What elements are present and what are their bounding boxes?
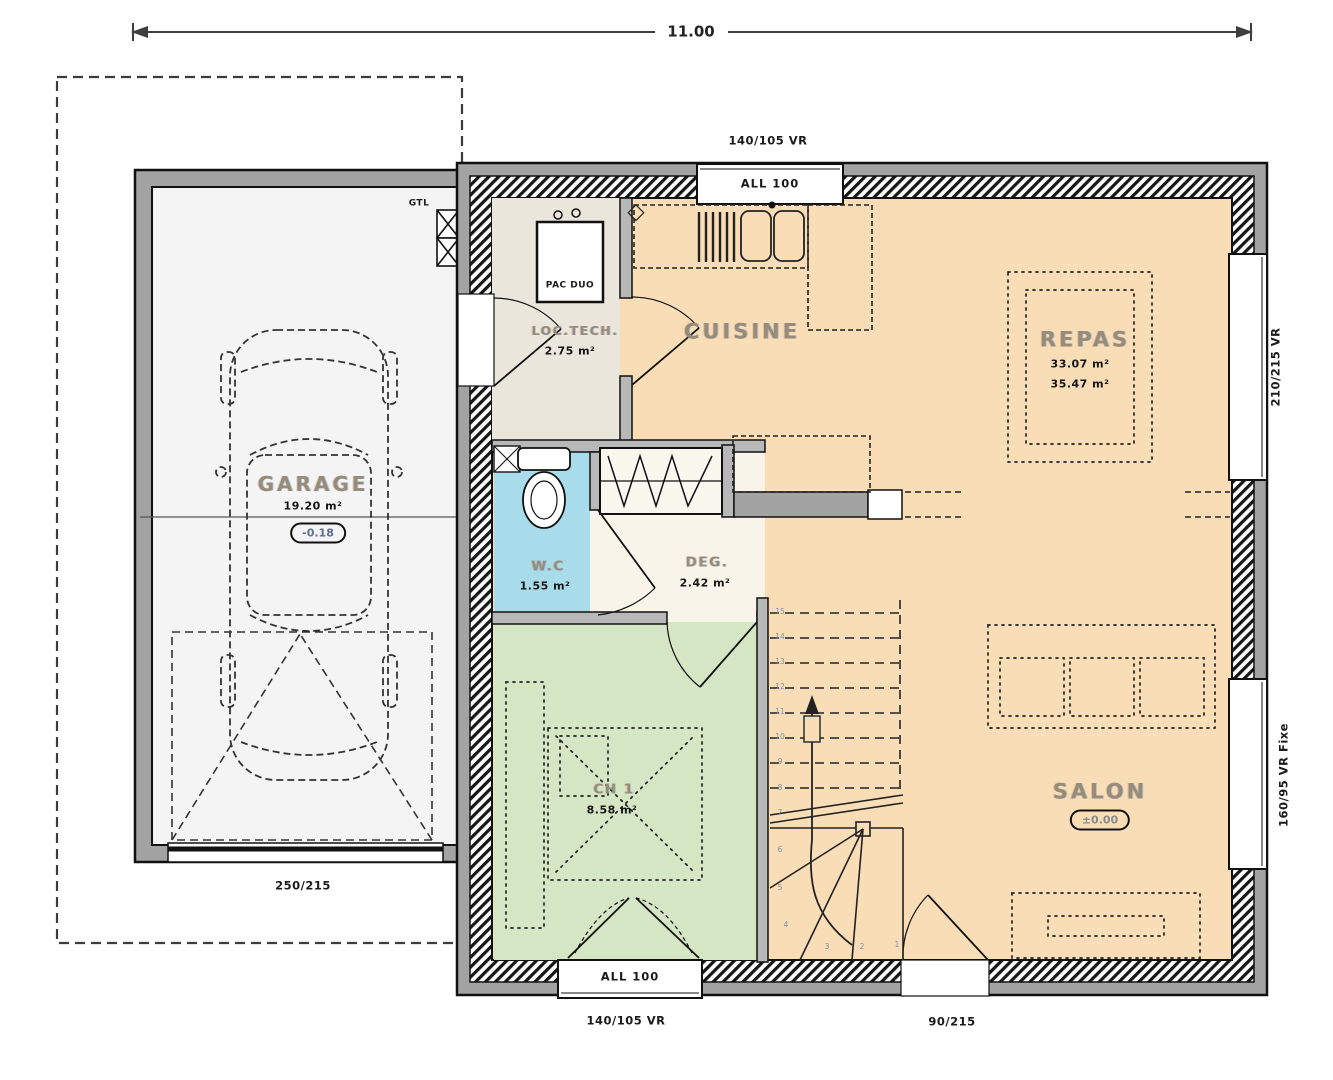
room-name-salon: SALON <box>1053 782 1147 803</box>
top-window-size: 140/105 VR <box>729 135 808 147</box>
room-name-deg: DEG. <box>686 556 729 570</box>
pac-label: PAC DUO <box>546 282 594 291</box>
room-area-garage: 19.20 m² <box>284 501 343 512</box>
svg-text:4: 4 <box>784 920 789 929</box>
salon-level-tag: ±0.00 <box>1070 810 1130 831</box>
bottom-window-size: 140/105 VR <box>587 1015 666 1027</box>
room-area-wc: 1.55 m² <box>520 581 571 592</box>
garage-level-tag: -0.18 <box>290 523 346 544</box>
svg-text:15: 15 <box>775 607 785 616</box>
svg-text:9: 9 <box>778 757 783 766</box>
closet-icon <box>600 448 722 514</box>
room-area-ch1: 8.58 m² <box>587 805 638 816</box>
room-area-deg: 2.42 m² <box>680 578 731 589</box>
right-top-window-size: 210/215 VR <box>1270 328 1282 407</box>
floor-plan-drawing: 123456789101112131415 <box>0 0 1333 1080</box>
room-area-repas-b: 35.47 m² <box>1051 379 1110 390</box>
bottom-window-sill: ALL 100 <box>601 971 660 983</box>
gtl-panel-icon <box>437 210 459 266</box>
room-name-cuisine: CUISINE <box>684 322 800 343</box>
room-area-loctech: 2.75 m² <box>545 346 596 357</box>
room-name-loctech: LOC.TECH. <box>531 325 618 338</box>
room-name-ch1: CH 1 <box>593 783 634 797</box>
svg-text:13: 13 <box>775 657 785 666</box>
svg-text:7: 7 <box>778 808 783 817</box>
svg-text:1: 1 <box>895 940 900 949</box>
top-window-sill: ALL 100 <box>741 178 800 190</box>
room-area-repas-a: 33.07 m² <box>1051 359 1110 370</box>
svg-text:6: 6 <box>778 845 783 854</box>
room-name-repas: REPAS <box>1040 330 1130 351</box>
svg-text:12: 12 <box>775 682 785 691</box>
right-bottom-window-size: 160/95 VR Fixe <box>1278 723 1290 827</box>
floor-plan: 123456789101112131415 11.00 140/105 VR A… <box>0 0 1333 1080</box>
svg-text:2: 2 <box>860 942 865 951</box>
gtl-label: GTL <box>409 200 430 209</box>
room-name-wc: W.C <box>531 560 564 574</box>
garage-structure <box>135 170 475 862</box>
svg-text:14: 14 <box>775 632 785 641</box>
entry-door-size: 90/215 <box>928 1016 975 1028</box>
svg-text:10: 10 <box>775 732 785 741</box>
svg-text:11: 11 <box>775 707 785 716</box>
garage-door-size: 250/215 <box>275 880 331 892</box>
overall-dimension: 11.00 <box>661 25 720 40</box>
svg-text:8: 8 <box>778 783 783 792</box>
room-name-garage: GARAGE <box>258 474 369 494</box>
svg-text:5: 5 <box>778 883 783 892</box>
svg-text:3: 3 <box>825 942 830 951</box>
